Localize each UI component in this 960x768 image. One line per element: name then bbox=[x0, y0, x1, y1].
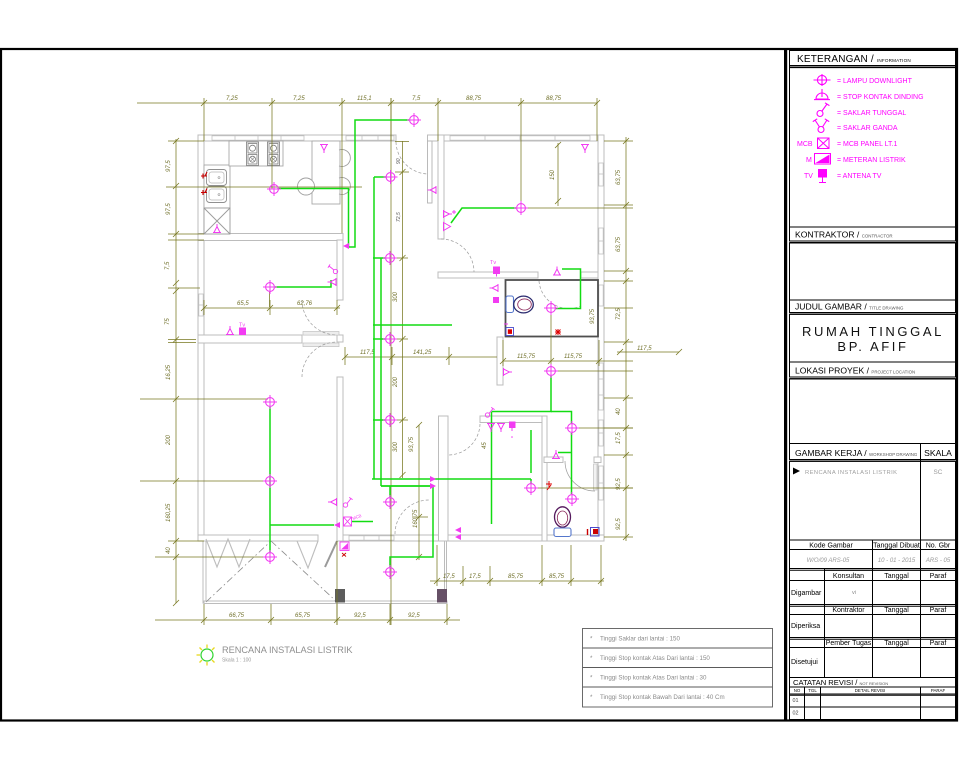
svg-text:Tanggal Dibuat: Tanggal Dibuat bbox=[873, 543, 920, 550]
svg-text:90: 90 bbox=[396, 158, 402, 164]
svg-text:RENCANA INSTALASI LISTRIK: RENCANA INSTALASI LISTRIK bbox=[222, 645, 353, 655]
svg-text:62,76: 62,76 bbox=[297, 301, 313, 307]
svg-text:97,5: 97,5 bbox=[166, 160, 172, 172]
svg-text:93,75: 93,75 bbox=[590, 308, 596, 324]
svg-text:DETAIL REVISI: DETAIL REVISI bbox=[855, 688, 886, 693]
svg-text:Disetujui: Disetujui bbox=[791, 659, 818, 666]
svg-text:160,25: 160,25 bbox=[166, 503, 172, 522]
svg-text:85,75: 85,75 bbox=[549, 574, 565, 580]
svg-text:300: 300 bbox=[393, 441, 399, 452]
svg-text:117,5: 117,5 bbox=[360, 350, 375, 356]
svg-text:RUMAH TINGGAL: RUMAH TINGGAL bbox=[802, 324, 944, 339]
svg-text:BP. AFIF: BP. AFIF bbox=[837, 339, 908, 354]
svg-text:= SAKLAR TUNGGAL: = SAKLAR TUNGGAL bbox=[837, 110, 906, 117]
svg-text:No. Gbr: No. Gbr bbox=[926, 543, 951, 550]
svg-text:7,5: 7,5 bbox=[412, 96, 421, 102]
svg-text:85,75: 85,75 bbox=[508, 574, 524, 580]
svg-text:Tinggi Stop kontak Atas Dari l: Tinggi Stop kontak Atas Dari lantai : 30 bbox=[600, 675, 707, 682]
svg-text:97,5: 97,5 bbox=[166, 203, 172, 215]
svg-text:Konsultan: Konsultan bbox=[833, 573, 864, 580]
svg-text:Tanggal: Tanggal bbox=[884, 607, 909, 614]
svg-text:7,5: 7,5 bbox=[165, 261, 171, 270]
svg-text:88,75: 88,75 bbox=[546, 96, 562, 102]
svg-text:40: 40 bbox=[616, 408, 622, 415]
svg-text:65,5: 65,5 bbox=[237, 301, 249, 307]
svg-text:= MCB PANEL LT.1: = MCB PANEL LT.1 bbox=[837, 141, 897, 148]
svg-text:Tinggi Stop kontak Atas Dari l: Tinggi Stop kontak Atas Dari lantai : 15… bbox=[600, 655, 710, 662]
svg-text:NO: NO bbox=[794, 688, 801, 693]
svg-text:ARS - 05: ARS - 05 bbox=[925, 558, 951, 564]
svg-text:Kode Gambar: Kode Gambar bbox=[809, 543, 853, 550]
svg-text:02: 02 bbox=[793, 711, 799, 717]
svg-text:SC: SC bbox=[934, 469, 943, 476]
svg-text:Tv: Tv bbox=[490, 260, 496, 266]
svg-text:92,5: 92,5 bbox=[408, 613, 420, 619]
svg-text:Digambar: Digambar bbox=[791, 590, 822, 597]
svg-text:115,75: 115,75 bbox=[517, 354, 536, 360]
svg-text:= METERAN LISTRIK: = METERAN LISTRIK bbox=[837, 157, 906, 164]
svg-text:PARAF: PARAF bbox=[931, 688, 946, 693]
svg-text:45: 45 bbox=[482, 442, 488, 449]
svg-text:72,5: 72,5 bbox=[396, 212, 402, 222]
svg-text:75: 75 bbox=[165, 318, 171, 325]
svg-text:7,25: 7,25 bbox=[293, 96, 305, 102]
svg-text:Paraf: Paraf bbox=[930, 607, 947, 614]
svg-text:16,25: 16,25 bbox=[166, 364, 172, 380]
svg-text:92,5: 92,5 bbox=[616, 518, 622, 530]
svg-text:Tinggi Stop kontak Bawah Dari: Tinggi Stop kontak Bawah Dari lantai : 4… bbox=[600, 694, 725, 701]
svg-text:160,75: 160,75 bbox=[413, 509, 419, 528]
svg-text:Pember Tugas: Pember Tugas bbox=[826, 640, 872, 647]
svg-text:= LAMPU DOWNLIGHT: = LAMPU DOWNLIGHT bbox=[837, 78, 913, 85]
svg-text:200: 200 bbox=[166, 434, 172, 446]
svg-text:TV: TV bbox=[804, 173, 813, 180]
svg-text:72,5: 72,5 bbox=[616, 308, 622, 320]
svg-text:63,75: 63,75 bbox=[616, 169, 622, 185]
svg-text:Kontraktor: Kontraktor bbox=[832, 607, 865, 614]
svg-text:Tanggal: Tanggal bbox=[884, 640, 909, 647]
svg-text:10 - 01 - 2015: 10 - 01 - 2015 bbox=[878, 558, 916, 564]
svg-text:= STOP KONTAK DINDING: = STOP KONTAK DINDING bbox=[837, 94, 924, 101]
svg-text:65,75: 65,75 bbox=[295, 613, 311, 619]
svg-text:= SAKLAR GANDA: = SAKLAR GANDA bbox=[837, 125, 898, 132]
svg-text:117,5: 117,5 bbox=[637, 346, 652, 352]
svg-text:150: 150 bbox=[550, 169, 556, 180]
svg-text:200: 200 bbox=[393, 376, 399, 388]
svg-text:01: 01 bbox=[793, 698, 799, 704]
svg-text:W/O/09 ARS-05: W/O/09 ARS-05 bbox=[807, 558, 850, 564]
svg-text:115,1: 115,1 bbox=[357, 96, 372, 102]
svg-text:Paraf: Paraf bbox=[930, 573, 947, 580]
svg-text:SKALA: SKALA bbox=[924, 448, 952, 458]
svg-text:17,5: 17,5 bbox=[443, 574, 455, 580]
svg-text:Tinggi Saklar dari lantai : 15: Tinggi Saklar dari lantai : 150 bbox=[600, 636, 680, 643]
svg-text:M: M bbox=[806, 157, 812, 164]
svg-text:115,75: 115,75 bbox=[564, 354, 583, 360]
svg-text:93,75: 93,75 bbox=[409, 436, 415, 452]
svg-text:88,75: 88,75 bbox=[466, 96, 482, 102]
svg-text:vi: vi bbox=[852, 590, 856, 596]
svg-text:MCB: MCB bbox=[797, 141, 813, 148]
svg-text:TGL: TGL bbox=[808, 688, 817, 693]
svg-text:Skala 1 : 100: Skala 1 : 100 bbox=[222, 658, 251, 664]
svg-text:Paraf: Paraf bbox=[930, 640, 947, 647]
svg-text:17,5: 17,5 bbox=[616, 432, 622, 444]
svg-text:Tanggal: Tanggal bbox=[884, 573, 909, 580]
svg-text:7,25: 7,25 bbox=[226, 96, 238, 102]
svg-text:92,5: 92,5 bbox=[616, 478, 622, 490]
svg-text:Diperiksa: Diperiksa bbox=[791, 623, 820, 630]
svg-text:40: 40 bbox=[166, 547, 172, 554]
svg-text:17,5: 17,5 bbox=[469, 574, 481, 580]
svg-text:63,75: 63,75 bbox=[616, 236, 622, 252]
svg-text:RENCANA INSTALASI LISTRIK: RENCANA INSTALASI LISTRIK bbox=[805, 470, 897, 476]
svg-text:= ANTENA TV: = ANTENA TV bbox=[837, 173, 882, 180]
svg-text:Tv: Tv bbox=[239, 323, 245, 329]
svg-text:66,75: 66,75 bbox=[229, 613, 245, 619]
svg-text:92,5: 92,5 bbox=[354, 613, 366, 619]
svg-text:141,25: 141,25 bbox=[413, 350, 432, 356]
svg-text:300: 300 bbox=[393, 291, 399, 302]
